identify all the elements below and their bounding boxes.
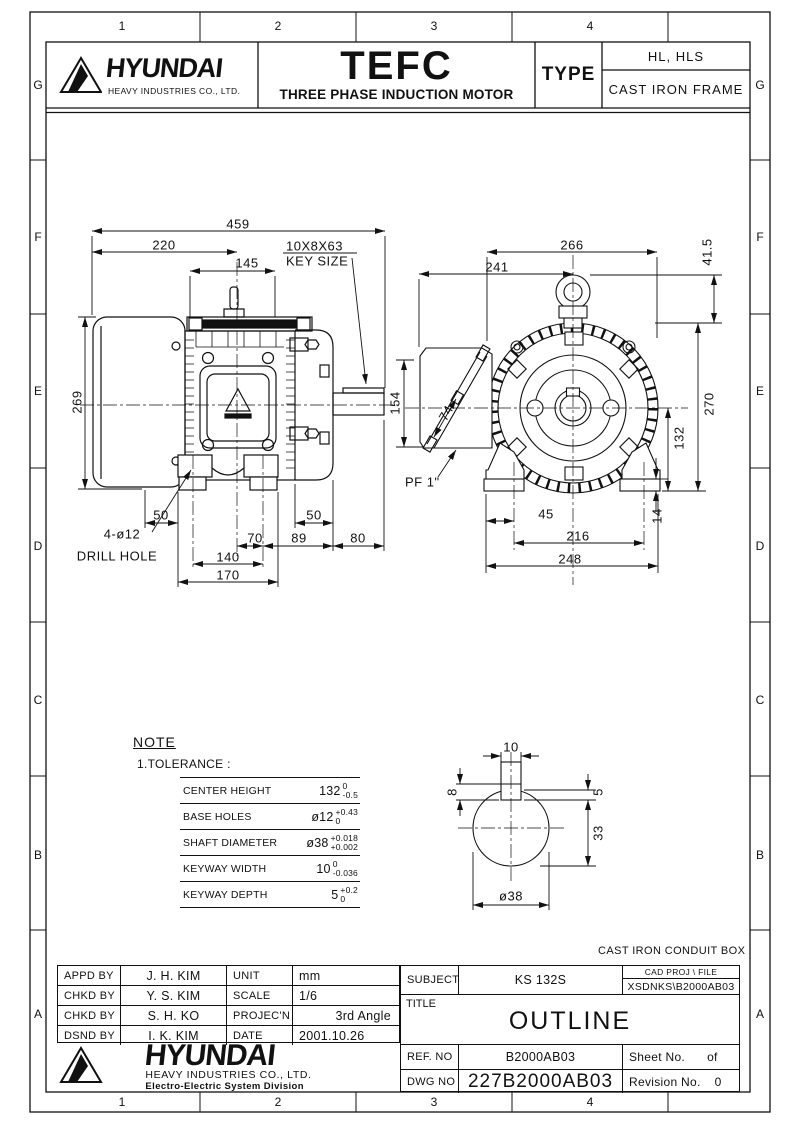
dim-foot-right-50: 50 (306, 509, 321, 522)
dim-shaft-length: 80 (350, 532, 365, 545)
subject-label: SUBJECT (401, 966, 459, 994)
dwg-no-value: 227B2000AB03 (459, 1070, 623, 1093)
grid-col-top-1: 1 (119, 19, 126, 33)
grid-row-right-e: E (756, 384, 764, 398)
approval-label: CHKD BY (58, 1006, 121, 1025)
hyundai-triangle-icon (58, 54, 102, 96)
tolerance-value: 5 (331, 888, 338, 902)
tolerance-label: CENTER HEIGHT (180, 785, 319, 797)
tolerance-lower: 0 (335, 817, 358, 826)
tolerance-table: CENTER HEIGHT 132 0-0.5 BASE HOLES ø12 +… (180, 777, 360, 908)
approval-name: S. H. KO (121, 1006, 227, 1025)
sheet-no-label: Sheet No. (629, 1050, 685, 1064)
tolerance-row: KEYWAY DEPTH 5 +0.20 (180, 882, 360, 908)
drill-hole-qty: 4-ø12 (104, 528, 140, 541)
note-block: NOTE 1.TOLERANCE : CENTER HEIGHT 132 0-0… (128, 734, 360, 908)
dim-edge-to-hole: 45 (538, 508, 553, 521)
tolerance-lower: -0.036 (333, 869, 358, 878)
tolerance-label: SHAFT DIAMETER (180, 837, 306, 849)
grid-col-bottom-3: 3 (431, 1095, 438, 1109)
grid-row-left-c: C (34, 693, 43, 707)
dim-shaft-diameter: ø38 (499, 890, 523, 903)
note-heading: NOTE (133, 734, 360, 750)
grid-row-right-f: F (756, 230, 763, 244)
subject-value: KS 132S (459, 966, 623, 994)
dwg-no-label: DWG NO (401, 1070, 459, 1093)
dim-keyway-depth: 5 (592, 788, 605, 796)
brand-subtitle: HEAVY INDUSTRIES CO., LTD. (108, 87, 240, 96)
title-table: SUBJECT KS 132S CAD PROJ \ FILE XSDNKS\B… (400, 965, 740, 1092)
dim-below-key: 33 (592, 825, 605, 840)
tolerance-lower: +0.002 (331, 843, 358, 852)
dim-hole-to-bracket: 89 (291, 532, 306, 545)
footer-brand-sub2: Electro-Electric System Division (145, 1081, 311, 1092)
product-title: TEFC (258, 44, 535, 89)
dim-foot-span: 170 (216, 569, 239, 582)
key-size-label: KEY SIZE (286, 255, 348, 268)
approval-label: APPD BY (58, 966, 121, 985)
grid-row-left-d: D (34, 539, 43, 553)
dim-top-width: 145 (235, 257, 258, 270)
grid-row-right-c: C (756, 693, 765, 707)
revision-label: Revision No. (629, 1075, 701, 1089)
grid-row-left-a: A (34, 1007, 42, 1021)
drawing-sheet: 1 2 3 4 1 2 3 4 G F E D C B A G F E D C … (0, 0, 793, 1122)
tolerance-lower: -0.5 (343, 791, 358, 800)
tolerance-row: CENTER HEIGHT 132 0-0.5 (180, 778, 360, 804)
grid-row-left-g: G (33, 78, 42, 92)
approval-label: CHKD BY (58, 986, 121, 1005)
tolerance-label: BASE HOLES (180, 811, 311, 823)
approval-name: J. H. KIM (121, 966, 227, 985)
approval-table: APPD BY J. H. KIM UNIT mm CHKD BY Y. S. … (57, 965, 400, 1043)
drill-hole-label: DRILL HOLE (77, 550, 157, 563)
dim-front-hole-span: 216 (566, 530, 589, 543)
tolerance-row: KEYWAY WIDTH 10 0-0.036 (180, 856, 360, 882)
sheet-no-value: of (707, 1050, 718, 1064)
product-block: TEFC THREE PHASE INDUCTION MOTOR (258, 42, 535, 108)
grid-col-bottom-2: 2 (275, 1095, 282, 1109)
dim-center-height: 132 (673, 426, 686, 449)
logo-block: HYUNDAI HEAVY INDUSTRIES CO., LTD. (46, 42, 258, 108)
dim-key-height: 8 (446, 788, 459, 796)
tolerance-value: 132 (319, 784, 340, 798)
dim-pad-height: 14 (651, 508, 664, 523)
tolerance-row: BASE HOLES ø12 +0.430 (180, 804, 360, 830)
dim-key-width: 10 (503, 741, 518, 754)
grid-row-right-a: A (756, 1007, 764, 1021)
meta-value: 3rd Angle (293, 1006, 399, 1025)
key-size-value: 10X8X63 (286, 240, 343, 253)
dim-overall-length: 459 (226, 218, 249, 231)
cad-proj-header: CAD PROJ \ FILE (623, 966, 739, 979)
ref-no-label: REF. NO (401, 1045, 459, 1069)
type-value-2: CAST IRON FRAME (602, 70, 750, 108)
dim-hole-span: 140 (216, 551, 239, 564)
cad-file-path: XSDNKS\B2000AB03 (623, 979, 739, 994)
revision-value: 0 (715, 1075, 722, 1089)
grid-col-bottom-4: 4 (587, 1095, 594, 1109)
grid-col-top-2: 2 (275, 19, 282, 33)
tolerance-value: ø38 (306, 836, 328, 850)
type-label: TYPE (535, 42, 602, 108)
grid-row-right-g: G (755, 78, 764, 92)
tolerance-value: ø12 (311, 810, 333, 824)
footer-logo-block: HYUNDAI HEAVY INDUSTRIES CO., LTD. Elect… (57, 1043, 400, 1090)
ref-no-value: B2000AB03 (459, 1045, 623, 1069)
conduit-box-note: CAST IRON CONDUIT BOX (598, 946, 738, 957)
meta-label: SCALE (227, 986, 293, 1005)
dim-body-width: 266 (560, 239, 583, 252)
approval-name: Y. S. KIM (121, 986, 227, 1005)
grid-row-left-e: E (34, 384, 42, 398)
meta-value: 1/6 (293, 986, 399, 1005)
conduit-thread-label: PF 1" (405, 476, 440, 489)
type-value-1: HL, HLS (602, 42, 750, 70)
dim-foot-left-50: 50 (153, 509, 168, 522)
footer-brand: HYUNDAI (144, 1042, 313, 1069)
tolerance-label: KEYWAY WIDTH (180, 863, 316, 875)
dim-conduit-height: 154 (389, 391, 402, 414)
drawing-title: OUTLINE (401, 1007, 739, 1036)
grid-col-top-3: 3 (431, 19, 438, 33)
meta-value: mm (293, 966, 399, 985)
dim-front-foot-span: 248 (558, 553, 581, 566)
tolerance-row: SHAFT DIAMETER ø38 +0.018+0.002 (180, 830, 360, 856)
grid-row-right-b: B (756, 848, 764, 862)
dim-fan-to-center: 220 (152, 239, 175, 252)
tolerance-value: 10 (316, 862, 330, 876)
product-subtitle: THREE PHASE INDUCTION MOTOR (258, 87, 535, 102)
dim-center-to-hole: 70 (247, 532, 262, 545)
tolerance-label: KEYWAY DEPTH (180, 889, 331, 901)
grid-col-top-4: 4 (587, 19, 594, 33)
dim-overall-height: 270 (703, 392, 716, 415)
dim-height: 269 (71, 390, 84, 413)
dim-eyebolt-height: 41.5 (701, 238, 714, 265)
grid-row-left-f: F (34, 230, 41, 244)
meta-label: UNIT (227, 966, 293, 985)
grid-row-left-b: B (34, 848, 42, 862)
dim-conduit-to-center: 241 (485, 261, 508, 274)
brand-name: HYUNDAI (105, 55, 224, 82)
meta-label: PROJEC'N (227, 1006, 293, 1025)
grid-col-bottom-1: 1 (119, 1095, 126, 1109)
hyundai-triangle-icon (57, 1043, 103, 1085)
grid-row-right-d: D (756, 539, 765, 553)
tolerance-heading: 1.TOLERANCE : (137, 757, 360, 771)
tolerance-lower: 0 (340, 895, 358, 904)
